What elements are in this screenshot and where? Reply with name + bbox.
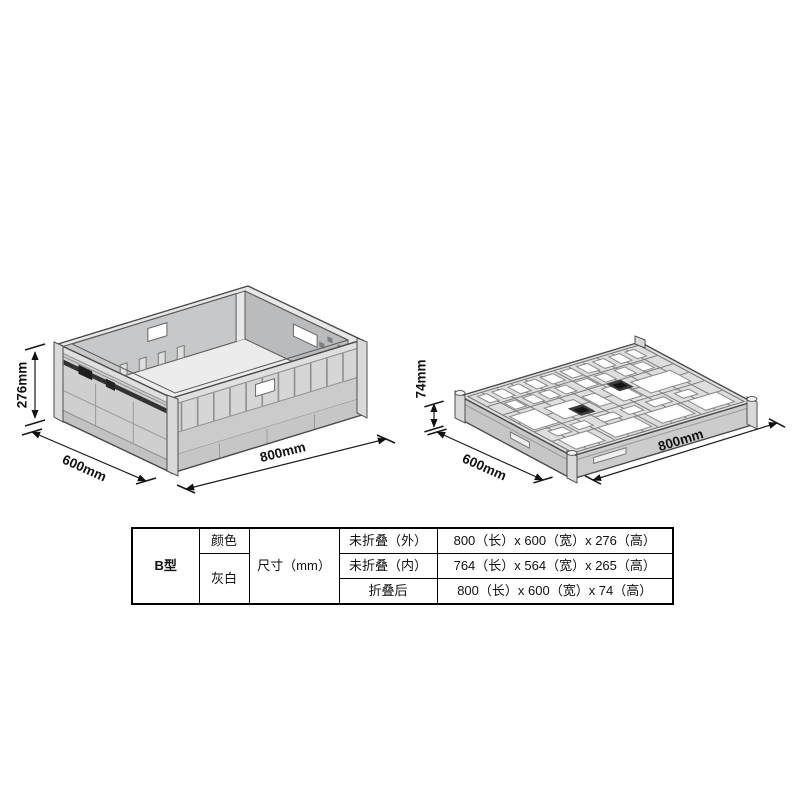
spec-table: B型 颜色 尺寸（mm） 未折叠（外） 800（长）x 600（宽）x 276（… bbox=[131, 527, 674, 605]
dim-height-label: 74mm bbox=[414, 359, 429, 398]
dimension-header: 尺寸（mm） bbox=[249, 528, 339, 604]
corner-post bbox=[54, 342, 63, 422]
corner-post-cap bbox=[455, 391, 465, 396]
unfolded-crate-diagram: 276mm 600mm 800mm bbox=[15, 272, 395, 502]
table-row: 灰白 未折叠（内） 764（长）x 564（宽）x 265（高） bbox=[132, 554, 673, 579]
dim-width-label: 600mm bbox=[60, 452, 109, 485]
corner-post-cap bbox=[747, 397, 757, 402]
dimensions-folded: 800（长）x 600（宽）x 74（高） bbox=[437, 579, 673, 605]
corner-post bbox=[167, 395, 178, 476]
color-header: 颜色 bbox=[199, 528, 249, 554]
model-name: B型 bbox=[132, 528, 199, 604]
state-unfolded-outer: 未折叠（外） bbox=[339, 528, 437, 554]
dimensions-unfolded-outer: 800（长）x 600（宽）x 276（高） bbox=[437, 528, 673, 554]
state-unfolded-inner: 未折叠（内） bbox=[339, 554, 437, 579]
dimensions-unfolded-inner: 764（长）x 564（宽）x 265（高） bbox=[437, 554, 673, 579]
dim-height-label: 276mm bbox=[15, 362, 30, 409]
product-spec-sheet: 276mm 600mm 800mm bbox=[0, 0, 800, 800]
folded-crate-diagram: 74mm 600mm 800mm bbox=[410, 330, 790, 495]
table-row: B型 颜色 尺寸（mm） 未折叠（外） 800（长）x 600（宽）x 276（… bbox=[132, 528, 673, 554]
corner-post-cap bbox=[567, 451, 577, 456]
color-value: 灰白 bbox=[199, 554, 249, 605]
dim-width-label: 600mm bbox=[460, 451, 509, 484]
corner-post bbox=[357, 338, 367, 418]
state-folded: 折叠后 bbox=[339, 579, 437, 605]
